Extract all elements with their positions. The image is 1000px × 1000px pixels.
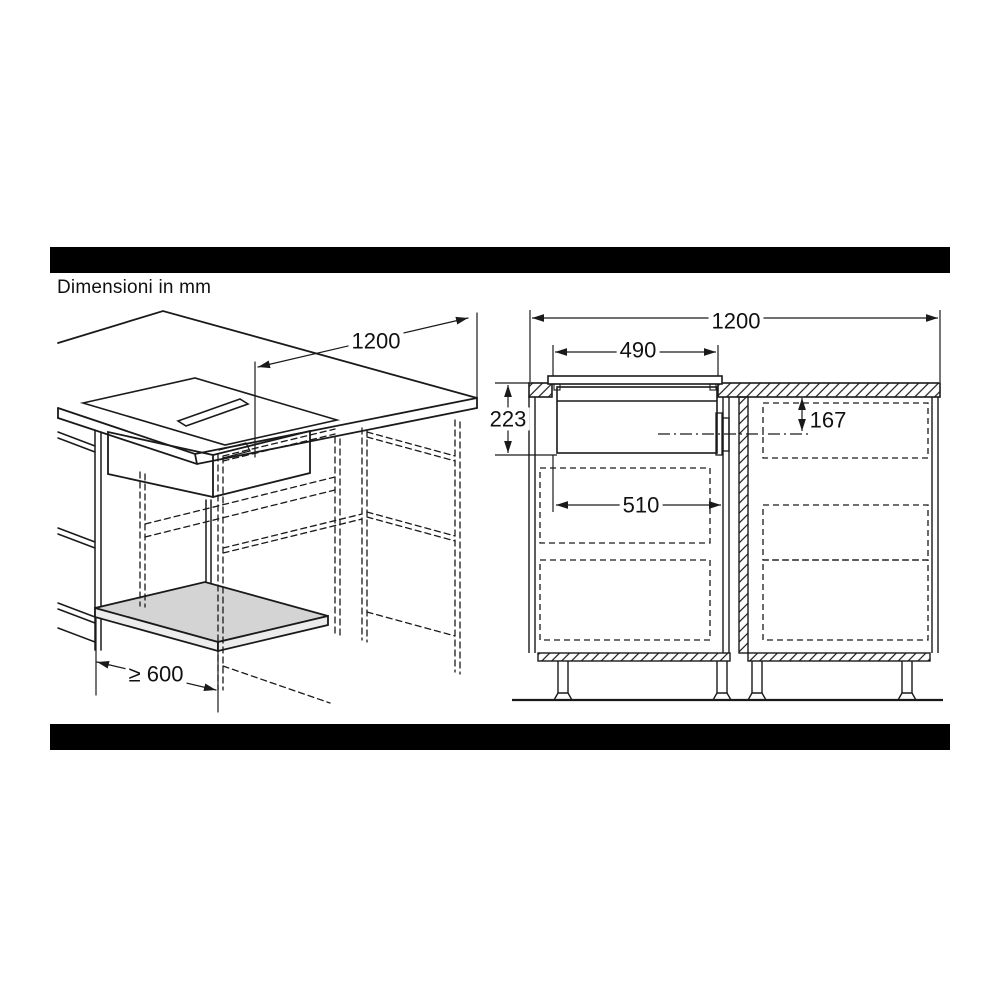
label-left-1200: 1200 [349, 329, 404, 352]
label-clearance-600: ≥ 600 [126, 662, 187, 685]
section-view [495, 310, 943, 700]
label-167: 167 [807, 408, 850, 431]
plinth-shelf [95, 582, 328, 651]
label-490: 490 [617, 338, 660, 361]
cabinet-base [512, 653, 943, 700]
worktop-section [529, 383, 940, 397]
label-223: 223 [487, 407, 530, 430]
technical-drawing [0, 0, 1000, 1000]
page: Dimensioni in mm [0, 0, 1000, 1000]
cabinet-legs [554, 661, 916, 700]
label-right-1200: 1200 [709, 309, 764, 332]
hidden-cabinet-lines [140, 420, 460, 703]
air-duct [206, 500, 211, 584]
label-510: 510 [620, 493, 663, 516]
cabinet-walls [529, 397, 938, 653]
hob-section [548, 376, 722, 453]
drawer-outlines [540, 403, 928, 640]
perspective-view [58, 311, 477, 712]
